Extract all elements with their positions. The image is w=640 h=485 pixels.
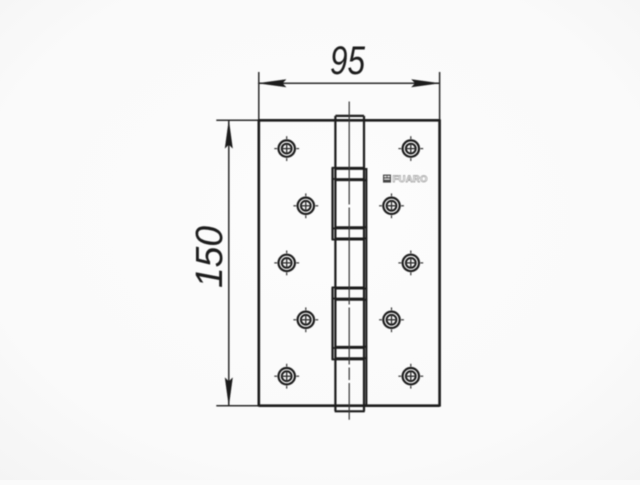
svg-text:95: 95 <box>330 39 366 83</box>
svg-text:FUARO: FUARO <box>393 174 428 185</box>
svg-text:150: 150 <box>189 226 231 288</box>
